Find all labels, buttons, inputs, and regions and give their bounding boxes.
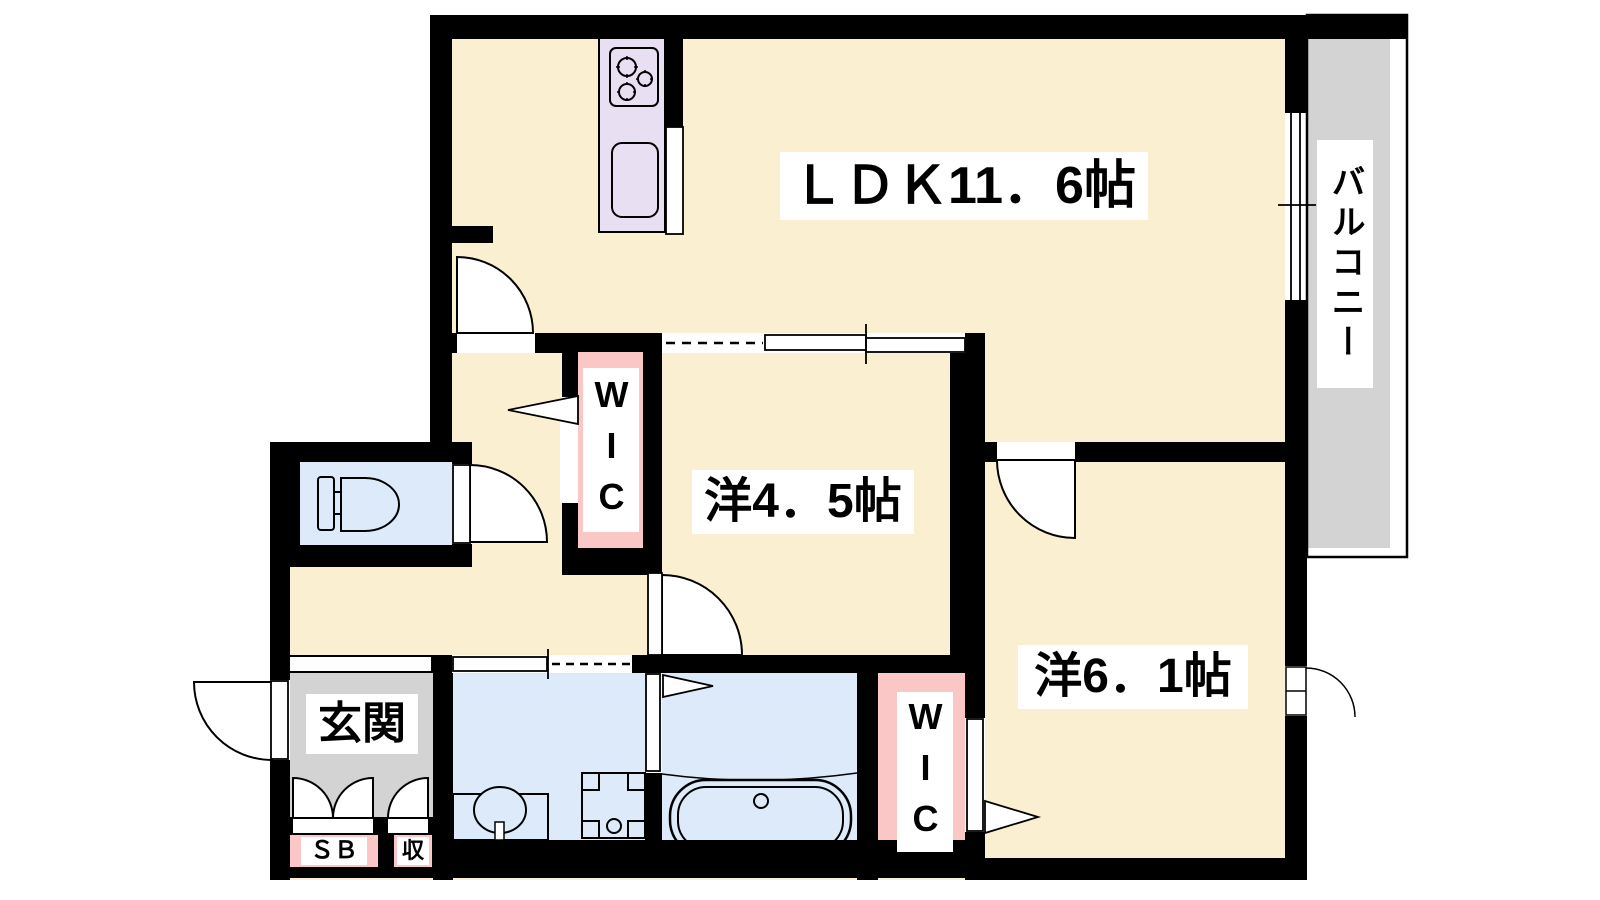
wall-bottom-right <box>965 858 1307 880</box>
room-label-wic2: WIC <box>897 692 953 852</box>
room-label-entrance: 玄関 <box>306 694 418 754</box>
doorway-bathroom <box>645 673 662 773</box>
wall-counter-stub <box>666 30 683 127</box>
room-label-ldk-text: ＬＤＫ11．6帖 <box>792 160 1136 212</box>
doorway-ldk-hall <box>457 333 535 353</box>
doorway-sliding-washroom <box>452 655 632 673</box>
door-arc-entrance <box>194 682 272 760</box>
bathroom-floor <box>662 673 857 840</box>
floor-plan: ＬＤＫ11．6帖 洋4．5帖 洋6．1帖 WIC WIC バルコニー 玄関 ＳＢ… <box>0 0 1600 900</box>
storage-label: 収 <box>397 837 429 865</box>
shoebox-label: ＳＢ <box>301 837 367 865</box>
wall-left-lower <box>270 442 290 880</box>
storage-label-text: 収 <box>402 840 424 862</box>
room-label-ldk: ＬＤＫ11．6帖 <box>780 152 1148 220</box>
window-arc-room61 <box>1306 668 1355 717</box>
shoebox-label-box: ＳＢ <box>290 835 378 867</box>
doorway-wic1 <box>560 397 578 503</box>
doorway-shoebox <box>293 817 373 833</box>
doorway-toilet <box>452 464 472 544</box>
room-label-western-4-5-text: 洋4．5帖 <box>704 478 901 526</box>
doorway-sliding-ldk-room45 <box>662 333 965 353</box>
kitchen-counter <box>598 30 666 233</box>
doorway-entrance <box>270 680 290 760</box>
entrance-step <box>288 655 433 673</box>
room-label-western-6-1: 洋6．1帖 <box>1018 645 1248 709</box>
room-label-western-4-5: 洋4．5帖 <box>692 470 914 534</box>
room-label-western-6-1-text: 洋6．1帖 <box>1034 653 1231 701</box>
window-room61-gap <box>1285 666 1307 716</box>
room-label-wic1: WIC <box>583 368 639 532</box>
shoebox-label-text: ＳＢ <box>310 839 358 863</box>
doorway-wic2 <box>965 718 985 832</box>
doorway-storage <box>388 817 428 833</box>
storage-label-box: 収 <box>394 835 432 867</box>
toilet-floor <box>300 462 452 545</box>
washroom-floor <box>453 673 645 840</box>
wall-top <box>430 15 1407 39</box>
room-label-balcony-text: バルコニー <box>1328 164 1362 364</box>
window-ldk-balcony <box>1285 113 1307 300</box>
wall-kitchen-stub <box>448 226 493 243</box>
room-label-wic1-text: WIC <box>593 374 629 527</box>
room-label-wic2-text: WIC <box>907 696 943 849</box>
wall-room45-right <box>950 333 985 672</box>
room-label-balcony: バルコニー <box>1317 140 1373 388</box>
doorway-room61 <box>997 442 1075 462</box>
room-label-entrance-text: 玄関 <box>318 702 406 746</box>
